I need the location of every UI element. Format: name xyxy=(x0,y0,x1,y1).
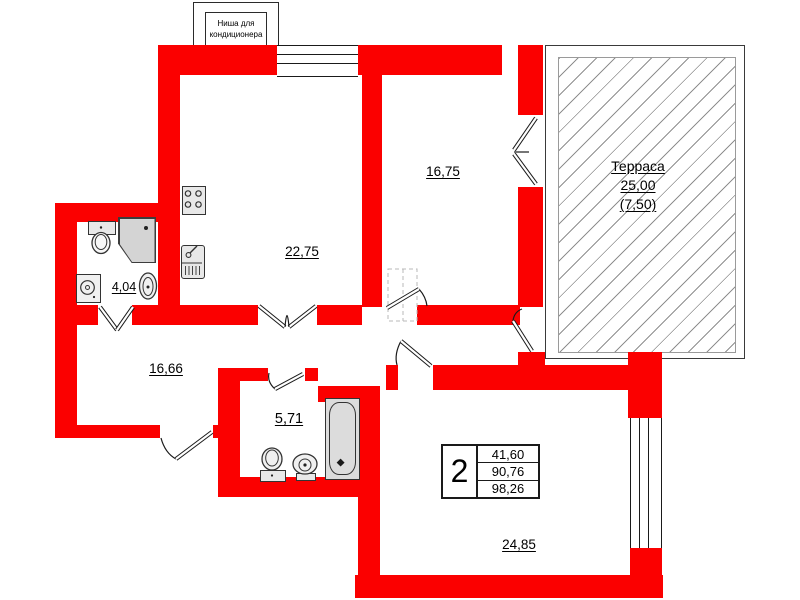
room-area-bedroom-bottom: 24,85 xyxy=(489,537,549,552)
bathroom-door xyxy=(269,373,303,389)
room-area-living: 22,75 xyxy=(272,244,332,259)
living-area-value: 41,60 xyxy=(478,446,538,462)
stove-burners xyxy=(185,191,201,207)
washing-machine-drum xyxy=(81,281,95,298)
bathtub-drain xyxy=(337,459,345,467)
room-area-bath: 5,71 xyxy=(264,411,314,427)
floor-plan: Терраса 25,00 (7,50) Ниша для кондиционе… xyxy=(0,0,800,600)
apartment-area-value: 90,76 xyxy=(478,462,538,479)
toilet-icon xyxy=(92,226,110,253)
shower-head-icon xyxy=(144,226,148,230)
apartment-info-box: 2 41,60 90,76 98,26 xyxy=(441,444,540,499)
terrace-french-door xyxy=(514,118,536,184)
door-symbols-layer xyxy=(0,0,800,600)
room-area-bedroom-top: 16,75 xyxy=(413,164,473,179)
double-door-living xyxy=(259,306,316,327)
bedroom-door xyxy=(396,341,431,366)
terrace-side-door xyxy=(513,309,532,351)
room-area-hall: 16,66 xyxy=(136,361,196,376)
rooms-count: 2 xyxy=(443,446,478,497)
total-area-value: 98,26 xyxy=(478,480,538,497)
wc-door xyxy=(100,307,133,330)
room-area-wc: 4,04 xyxy=(102,280,146,294)
area-summary: 41,60 90,76 98,26 xyxy=(478,446,538,497)
washbasin-icon xyxy=(293,454,317,474)
toilet-icon xyxy=(262,448,282,477)
kitchen-sink-details xyxy=(182,246,202,275)
entrance-door xyxy=(161,432,212,459)
top-bedroom-door xyxy=(387,269,427,321)
